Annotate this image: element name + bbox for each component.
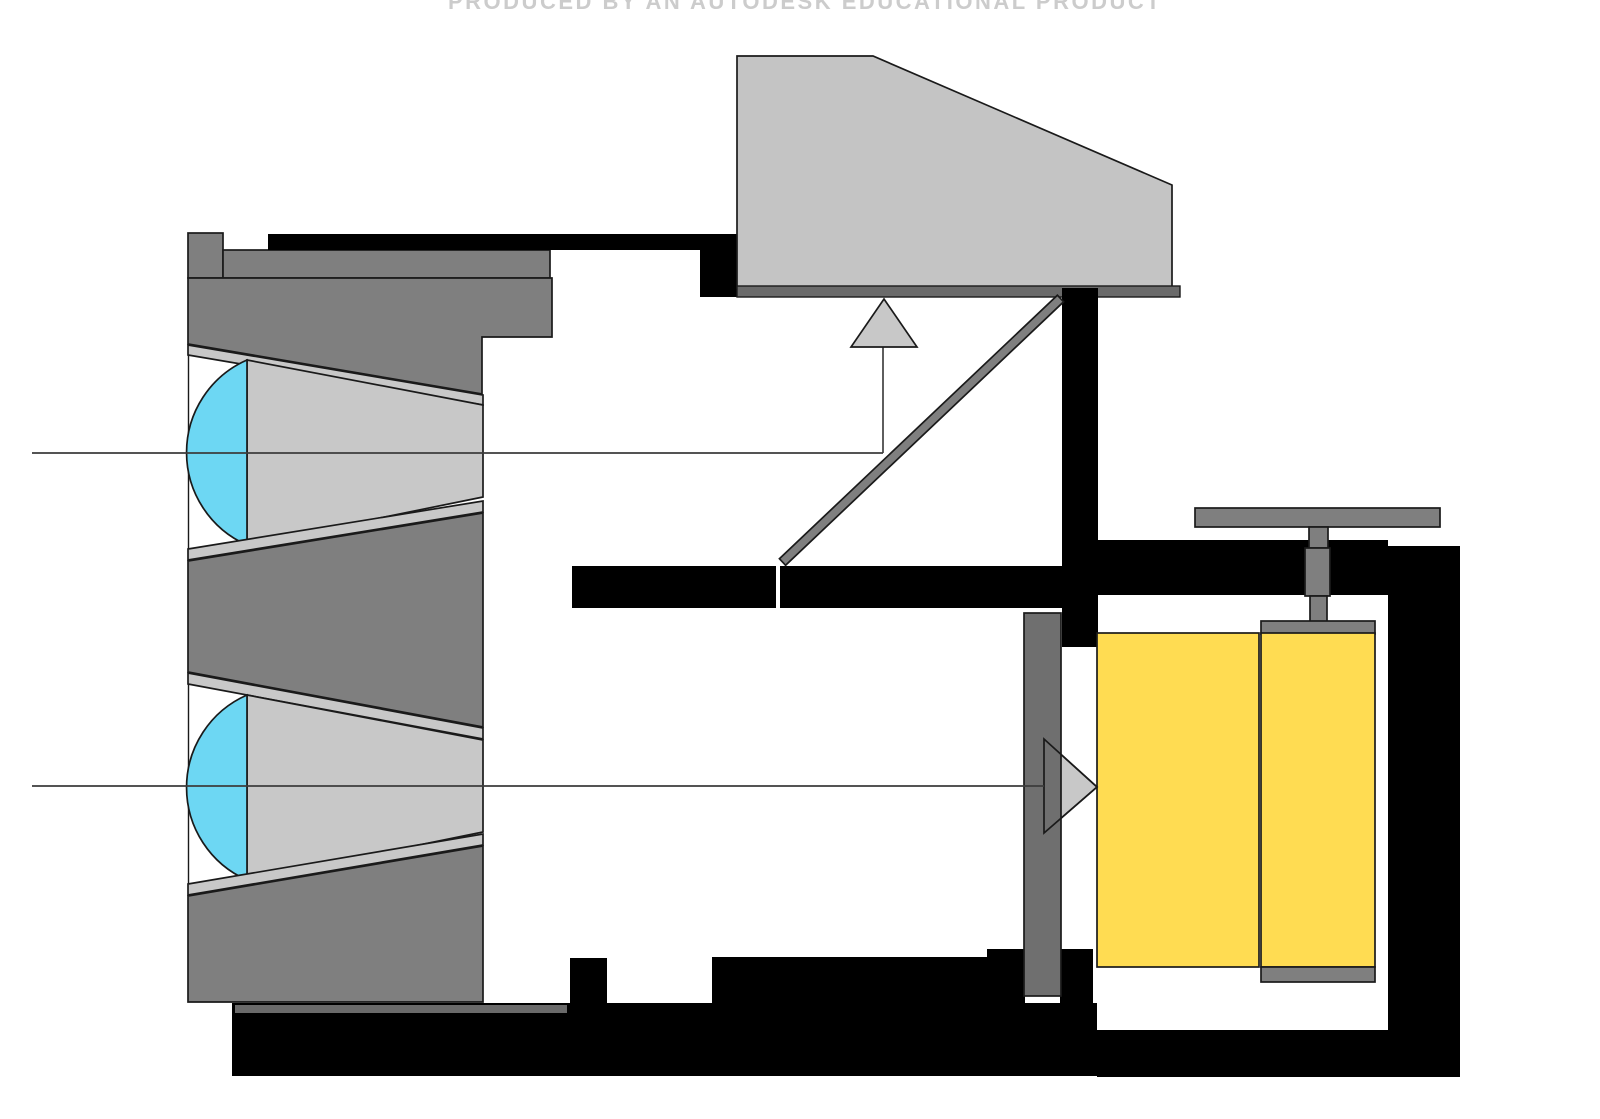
shutter-curtain: [1024, 613, 1061, 996]
shutter-slit: [1025, 996, 1060, 1003]
film-advance-crank: [1195, 508, 1440, 527]
film-chamber-top-plate: [1095, 540, 1388, 595]
lens-barrel-band: [223, 250, 550, 278]
lower-lens-element: [187, 695, 247, 880]
crank-shaft-lower: [1310, 596, 1327, 622]
camera-cross-section-diagram: PRODUCED BY AN AUTODESK EDUCATIONAL PROD…: [0, 0, 1600, 1119]
prism-support-block: [700, 250, 737, 297]
focusing-screen: [737, 286, 1180, 297]
base-platform: [712, 957, 987, 1003]
crank-shaft-middle: [1305, 548, 1330, 596]
reflex-mirror: [779, 295, 1063, 565]
up-arrow-icon: [851, 299, 917, 347]
takeup-spool: [1261, 633, 1375, 967]
base-trim-strip: [235, 1005, 567, 1013]
mirror-box-bottom-bar-left: [572, 566, 776, 608]
mirror-box-bottom-bar-right: [780, 566, 1062, 608]
film-cartridge: [1097, 633, 1259, 967]
film-chamber-right-wall: [1388, 546, 1460, 1077]
film-chamber-bottom: [1097, 1030, 1460, 1077]
takeup-spool-top-cap: [1261, 621, 1375, 634]
base-step-block: [570, 958, 607, 1003]
takeup-spool-bottom-cap: [1261, 967, 1375, 982]
viewfinder-prism: [737, 56, 1172, 288]
top-plate-strip: [268, 234, 737, 250]
camera-base-plate: [232, 1003, 1097, 1076]
diagram-canvas: [0, 0, 1600, 1119]
mirror-box-right-wall: [1062, 288, 1098, 647]
lens-mount-tab: [188, 233, 223, 278]
crank-shaft-top: [1309, 527, 1328, 548]
